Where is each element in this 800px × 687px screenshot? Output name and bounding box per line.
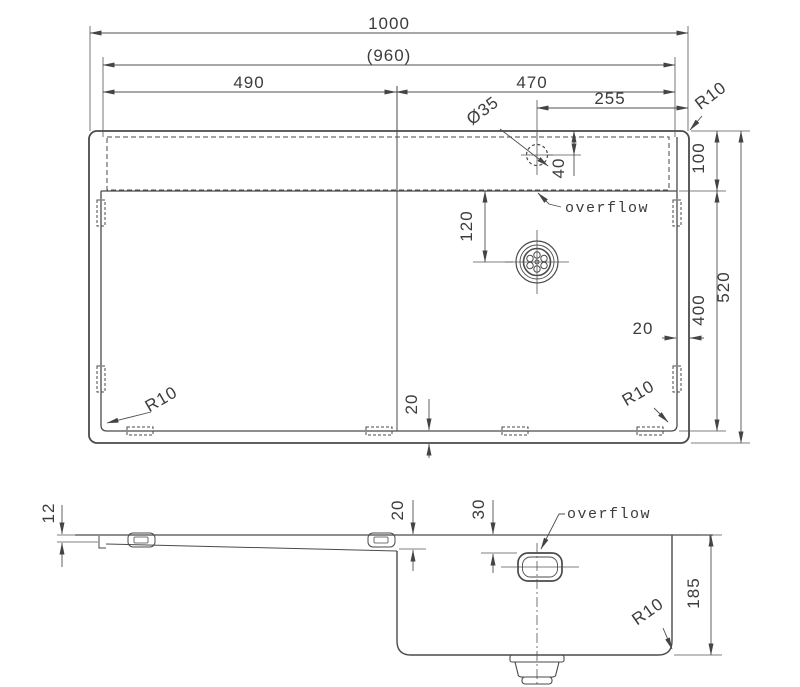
dim-overall-width: 1000 (368, 14, 410, 33)
leader-overflow-section (541, 514, 565, 549)
dim-overall-depth: 520 (714, 271, 733, 302)
mounting-clips (97, 200, 681, 435)
label-overflow-top: overflow (565, 200, 649, 217)
dim-bottom-rim: 20 (402, 394, 421, 415)
dim-right-rim: 20 (633, 319, 654, 338)
dim-ledge-depth: 100 (689, 142, 708, 173)
dim-bowl-depth: 185 (684, 577, 703, 608)
label-r10-top-right: R10 (691, 78, 730, 114)
sink-dimension-drawing: 1000 (960) 490 470 255 20 40 120 100 400… (0, 0, 800, 687)
sink-inner-outline (101, 137, 677, 431)
dim-bowl-width: 470 (516, 73, 547, 92)
dim-inner-width: (960) (367, 46, 412, 65)
leader-r10-top-right (690, 116, 702, 130)
drawing-canvas: 1000 (960) 490 470 255 20 40 120 100 400… (0, 0, 800, 687)
top-view: 1000 (960) 490 470 255 20 40 120 100 400… (89, 14, 750, 458)
dim-drainboard-drop: 20 (388, 500, 407, 521)
extension-lines-section (57, 535, 722, 655)
dim-faucet-to-edge: 255 (594, 89, 625, 108)
leader-r10-bottom-right (654, 408, 668, 422)
dim-overflow-from-top: 30 (469, 499, 488, 520)
dim-drainboard-width: 490 (233, 73, 264, 92)
leader-faucet-diameter (500, 129, 548, 166)
label-overflow-section: overflow (567, 506, 651, 523)
dim-bowl-length: 400 (689, 294, 708, 325)
drain-strainer (505, 230, 569, 294)
dim-front-edge-height: 12 (39, 503, 58, 524)
dim-drain-from-ledge: 120 (457, 210, 476, 241)
leader-overflow-top (538, 193, 561, 207)
label-r10-section: R10 (628, 594, 667, 629)
extension-lines-top (90, 26, 750, 443)
leader-r10-section (663, 628, 672, 649)
label-faucet-diameter: Ø35 (463, 92, 502, 128)
ledge-recess-dashed-outline (107, 137, 669, 190)
dim-faucet-from-top: 40 (549, 158, 568, 179)
label-r10-bottom-right: R10 (619, 376, 658, 410)
section-view: 12 20 30 185 R10 overflow (39, 499, 722, 687)
label-r10-bottom-left: R10 (142, 382, 181, 416)
section-front-lip (99, 536, 106, 548)
leader-r10-bottom-left (107, 412, 151, 423)
